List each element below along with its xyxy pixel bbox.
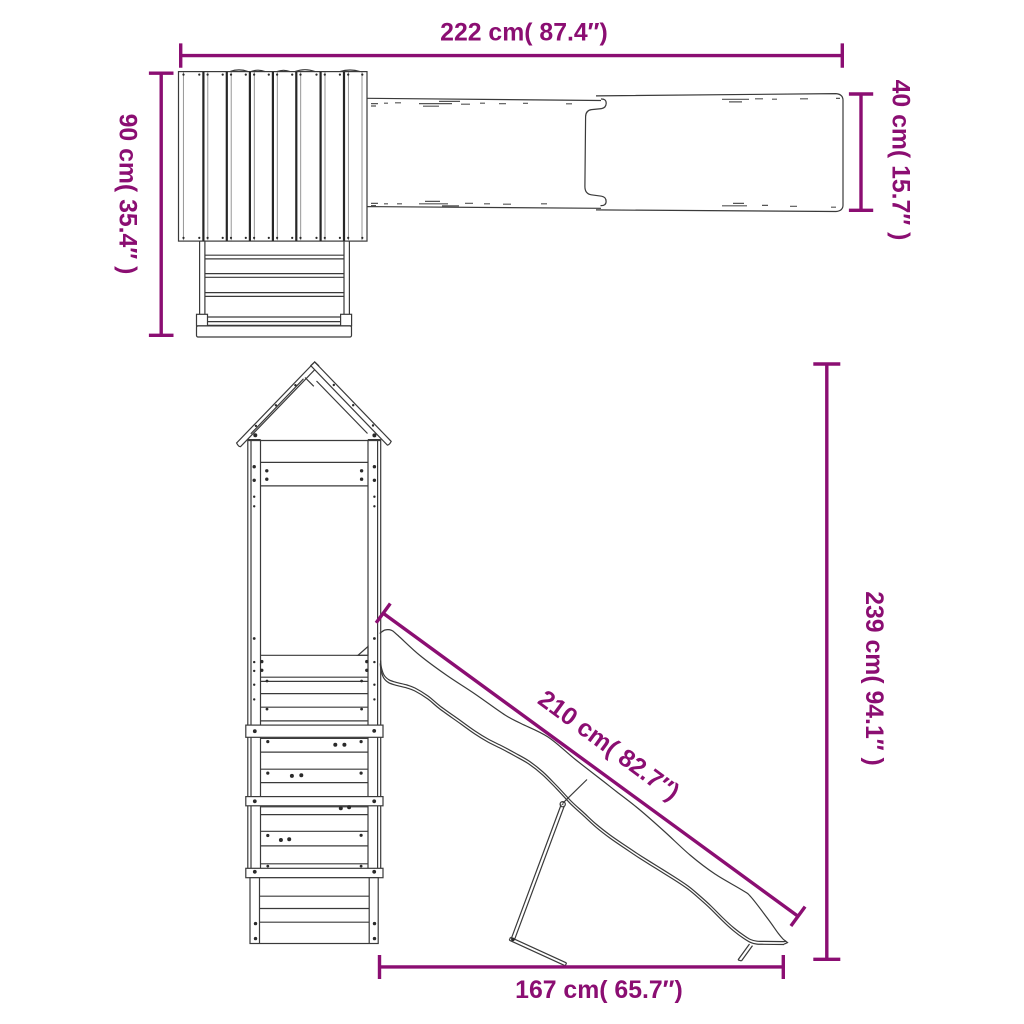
- svg-text:167 cm( 65.7″): 167 cm( 65.7″): [515, 977, 683, 1004]
- svg-text:40 cm( 15.7″ ): 40 cm( 15.7″ ): [887, 80, 914, 241]
- svg-text:222 cm( 87.4″): 222 cm( 87.4″): [440, 20, 608, 47]
- svg-text:239 cm( 94.1″ ): 239 cm( 94.1″ ): [860, 591, 887, 766]
- svg-text:90 cm( 35.4″ ): 90 cm( 35.4″ ): [114, 114, 141, 275]
